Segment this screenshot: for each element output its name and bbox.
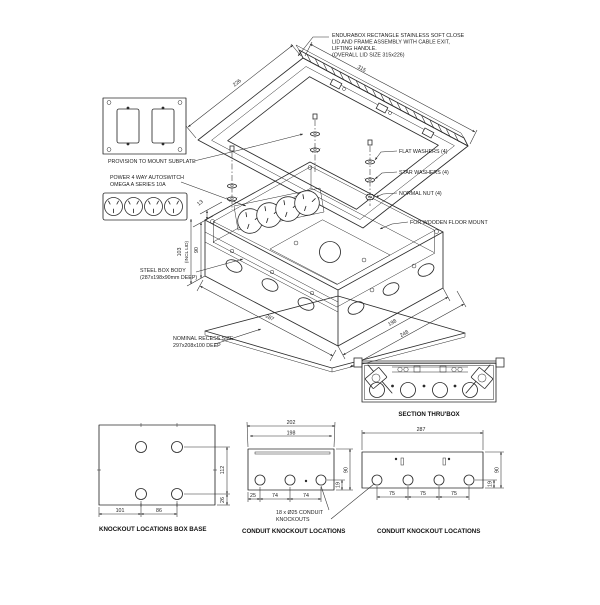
section-view: SECTION THRU'BOX [354,358,504,418]
hardware-labels: FLAT WASHERS (4) STAR WASHERS (4) NORMAL… [375,149,488,229]
star-washers-label: STAR WASHERS (4) [399,170,449,176]
section-label: SECTION THRU'BOX [398,411,460,418]
flat-washers-label: FLAT WASHERS (4) [399,149,448,155]
flat-washer-icon [227,184,236,188]
dim-lid-depth: 226 [232,78,243,88]
dim-box-width: 198 [387,318,398,328]
dim-flange-width: 248 [399,329,410,339]
subplate-annotation: PROVISION TO MOUNT SUBPLATE [108,134,303,165]
star-washer-icon [365,177,376,183]
dim-base-112: 112 [220,466,226,474]
section-socket-left [365,367,387,389]
stud-bolt [313,114,317,119]
subplate-view [103,98,186,154]
subplate-label: PROVISION TO MOUNT SUBPLATE [108,159,196,165]
box-base-view: 101 86 112 26 KNOCKOUT LOCATIONS BOX BAS… [97,423,230,533]
dim-lid-width: 315 [356,64,367,73]
flat-washer-icon [310,132,319,136]
note-leader [298,37,329,56]
dim-mid-90: 90 [344,467,350,473]
dim-mid-74a: 74 [272,493,278,499]
note-line-1: ENDURABOX RECTANGLE STAINLESS SOFT CLOSE [332,33,465,39]
steel-box-leader [196,259,243,272]
dim-box-height: 90 [194,247,200,253]
dim-box-length: 287 [264,313,275,322]
endurabox-note: ENDURABOX RECTANGLE STAINLESS SOFT CLOSE… [298,33,465,59]
dim-right-75c: 75 [451,491,457,497]
steel-box-annotation: STEEL BOX BODY (287x198x90mm DEEP) [140,259,243,281]
normal-nut-label: NORMAL NUT (4) [399,191,442,197]
iso-dimensions: 226 315 13 103 (INCL LID) 90 287 198 248 [177,42,477,367]
stud-bolt [230,146,234,151]
dim-base-26: 26 [220,497,226,503]
section-lid-mechanism [392,366,468,372]
subplate-leader [194,134,303,161]
steel-box-label-1: STEEL BOX BODY [140,268,186,274]
socket-outlet [125,198,143,216]
dim-right-287: 287 [417,427,426,433]
drawing-canvas: ENDURABOX RECTANGLE STAINLESS SOFT CLOSE… [0,0,600,600]
stud-bolt [368,140,372,145]
dim-right-90: 90 [495,467,501,473]
box-base-label: KNOCKOUT LOCATIONS BOX BASE [99,526,206,533]
dim-mid-74b: 74 [303,493,309,499]
note-line-3: LIFTING HANDLE. [332,46,377,52]
power-label-1: POWER 4 WAY AUTOSWITCH [110,175,184,181]
recess-annotation: NOMINAL RECESS SIZE 297x208x100 DEEP [173,329,261,349]
conduit-callout-1: 18 x Ø25 CONDUIT [276,510,324,516]
dim-overall-height: 103 [177,248,183,257]
box-right-face-details [346,261,436,317]
flat-washer-icon [365,160,374,164]
star-washer-icon [310,147,321,153]
dim-lid-height: 13 [196,199,204,207]
dim-base-101: 101 [116,508,125,514]
socket-outlet [165,198,183,216]
dim-right-75b: 75 [420,491,426,497]
wooden-floor-label: FOR WOODEN FLOOR MOUNT [410,220,488,226]
dim-overall-height-note: (INCL LID) [184,240,189,263]
conduit-mid-label: CONDUIT KNOCKOUT LOCATIONS [242,528,345,535]
conduit-mid-view: 202 198 25 74 74 90 19 18 x Ø25 CONDUIT … [242,420,353,535]
dim-mid-19: 19 [336,482,342,488]
note-line-2: LID AND FRAME ASSEMBLY WITH CABLE EXIT, [332,40,450,46]
dim-right-75a: 75 [389,491,395,497]
section-socket-right [471,367,493,389]
open-lid-strip [296,45,468,146]
conduit-callout-2: KNOCKOUTS [276,517,310,523]
dim-mid-202: 202 [287,420,296,426]
dim-right-19: 19 [488,481,494,487]
power-label-2: OMEGA A SERIES 10A [110,182,166,188]
socket-outlet [105,198,123,216]
note-line-4: (OVERALL LID SIZE 315x226) [332,53,405,59]
recess-label-2: 297x208x100 DEEP [173,343,221,349]
steel-box-label-2: (287x198x90mm DEEP) [140,275,197,281]
dim-mid-198: 198 [287,431,296,437]
power-strip-view [103,193,187,220]
box-outlets [234,188,324,237]
conduit-right-view: 287 75 75 75 90 19 CONDUIT KNOCKOUT LOCA… [331,427,504,535]
box-body-isometric [205,162,443,346]
dim-mid-25: 25 [250,493,256,499]
conduit-right-label: CONDUIT KNOCKOUT LOCATIONS [377,528,480,535]
socket-outlet [145,198,163,216]
technical-drawing-sheet: ENDURABOX RECTANGLE STAINLESS SOFT CLOSE… [0,0,600,600]
dim-base-86: 86 [156,508,162,514]
